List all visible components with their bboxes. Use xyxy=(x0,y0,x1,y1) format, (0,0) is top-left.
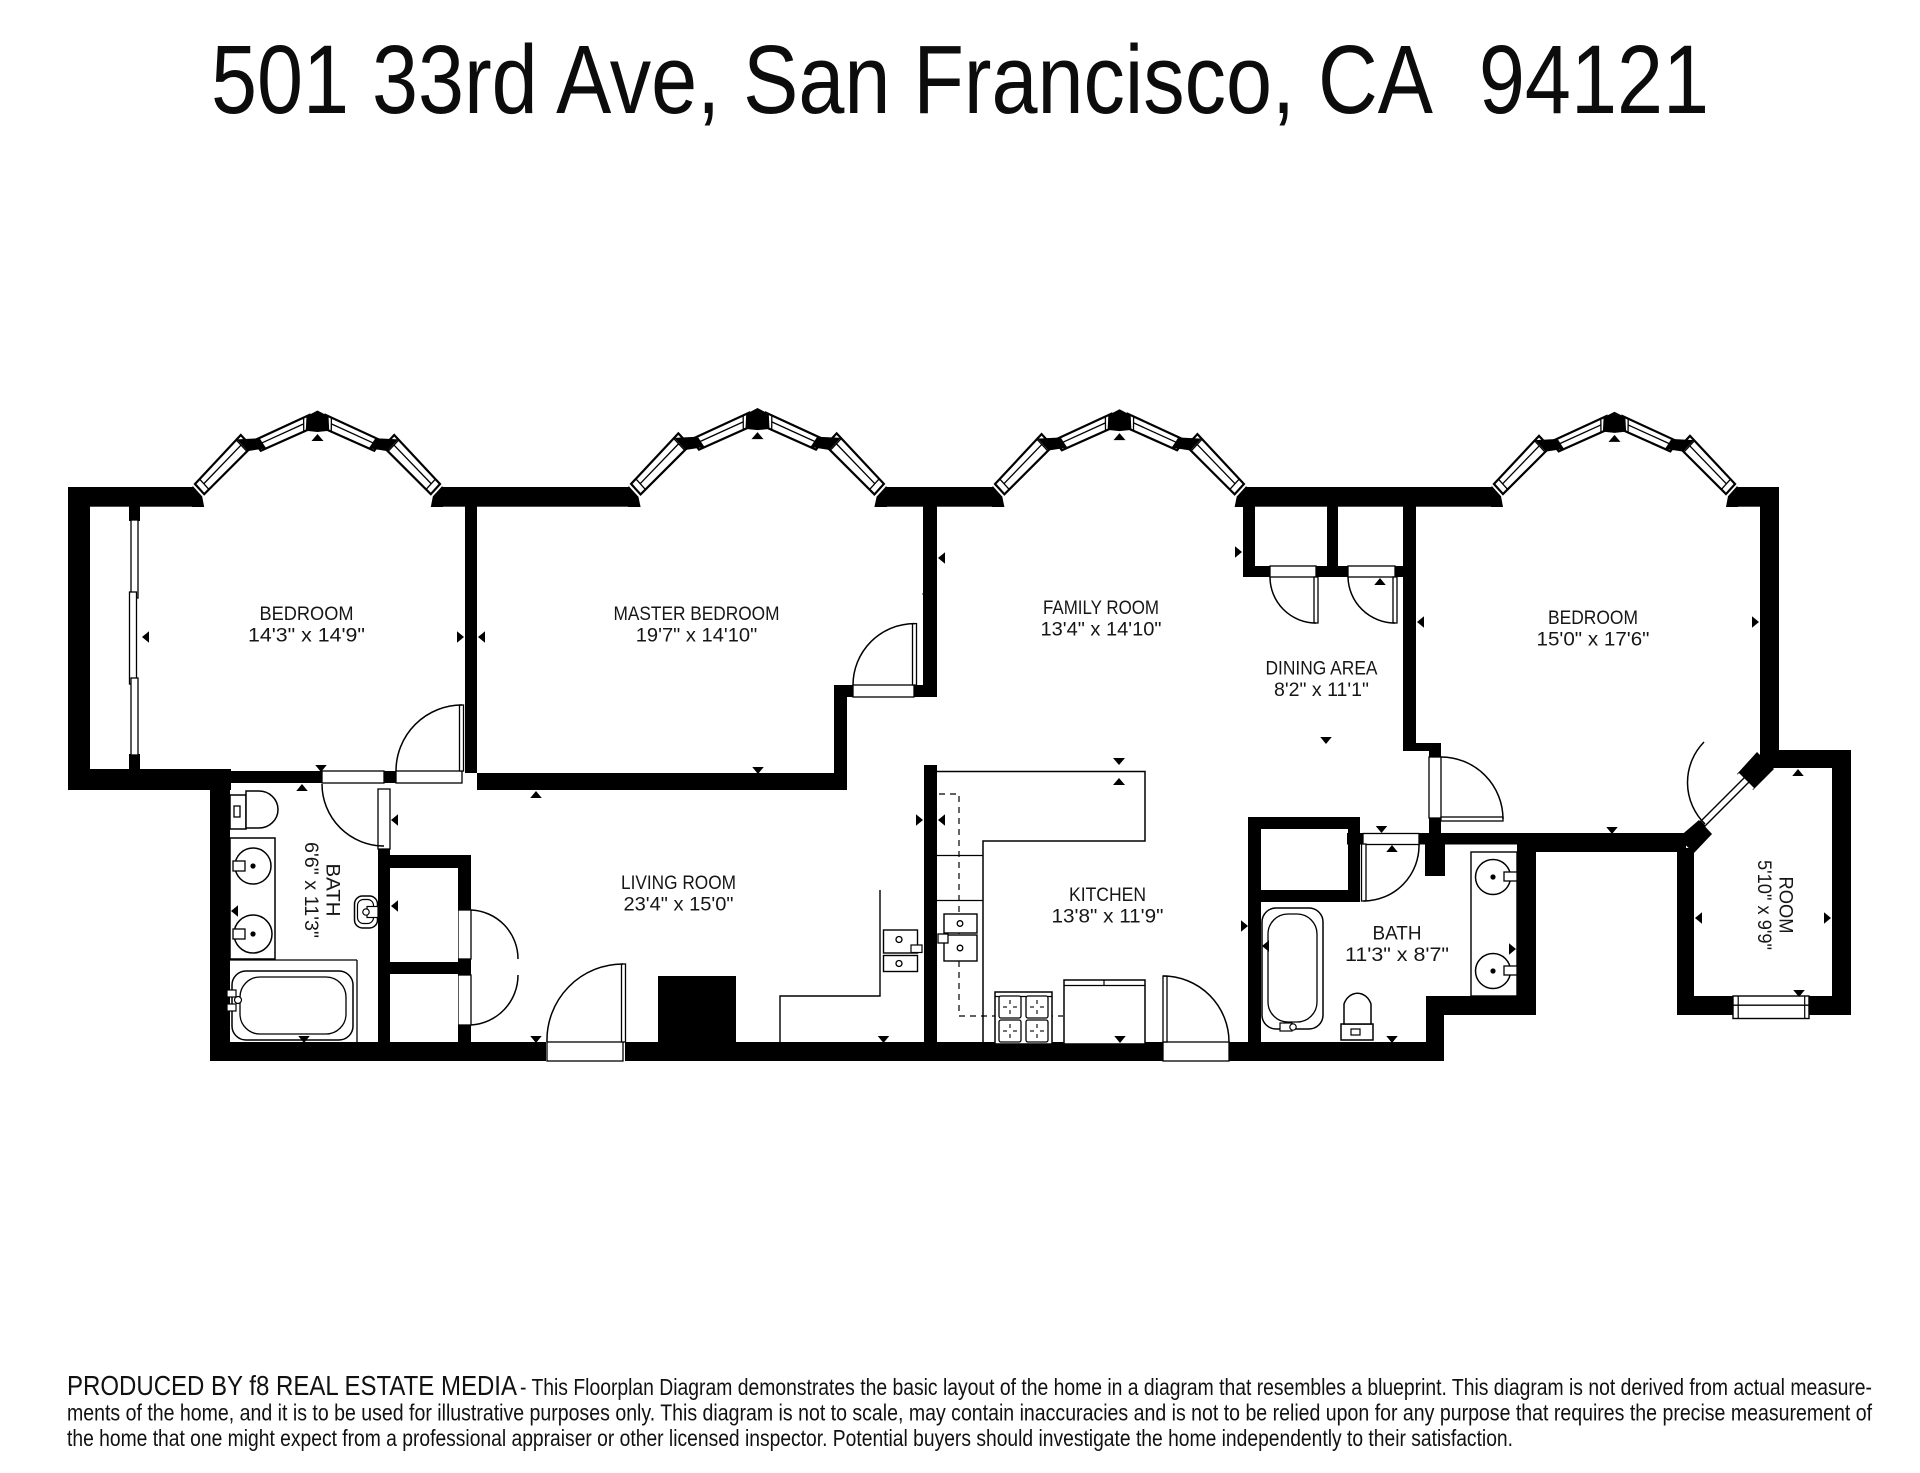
svg-text:501 33rd Ave, San Francisco, C: 501 33rd Ave, San Francisco, CA 94121 xyxy=(211,25,1709,134)
svg-text:6'6" x 11'3": 6'6" x 11'3" xyxy=(300,842,322,938)
svg-text:the home that one might expect: the home that one might expect from a pr… xyxy=(67,1425,1513,1451)
svg-text:8'2" x 11'1": 8'2" x 11'1" xyxy=(1274,679,1369,701)
svg-text:5'10" x 9'9": 5'10" x 9'9" xyxy=(1753,860,1775,950)
svg-text:13'4" x 14'10": 13'4" x 14'10" xyxy=(1041,619,1162,641)
svg-text:BATH: BATH xyxy=(322,864,344,917)
svg-text:BEDROOM: BEDROOM xyxy=(1548,607,1638,629)
svg-text:DINING AREA: DINING AREA xyxy=(1266,658,1378,680)
svg-text:11'3" x 8'7": 11'3" x 8'7" xyxy=(1345,944,1449,966)
svg-text:KITCHEN: KITCHEN xyxy=(1069,884,1146,906)
svg-text:LIVING ROOM: LIVING ROOM xyxy=(621,872,736,894)
svg-text:FAMILY ROOM: FAMILY ROOM xyxy=(1043,597,1159,619)
svg-text:BATH: BATH xyxy=(1373,922,1422,944)
svg-text:13'8" x 11'9": 13'8" x 11'9" xyxy=(1052,906,1164,928)
svg-text:PRODUCED BY f8 REAL ESTATE MED: PRODUCED BY f8 REAL ESTATE MEDIA xyxy=(67,1370,517,1401)
svg-text:15'0" x 17'6": 15'0" x 17'6" xyxy=(1537,629,1650,651)
svg-text:ROOM: ROOM xyxy=(1775,877,1797,934)
svg-text:BEDROOM: BEDROOM xyxy=(260,603,354,625)
svg-text:23'4" x 15'0": 23'4" x 15'0" xyxy=(624,894,734,916)
svg-text:- This Floorplan Diagram demon: - This Floorplan Diagram demonstrates th… xyxy=(520,1374,1872,1400)
svg-text:19'7" x 14'10": 19'7" x 14'10" xyxy=(636,624,758,646)
svg-text:14'3" x 14'9": 14'3" x 14'9" xyxy=(248,625,365,647)
svg-text:MASTER BEDROOM: MASTER BEDROOM xyxy=(614,603,780,625)
svg-text:ments of the home, and it is t: ments of the home, and it is to be used … xyxy=(67,1400,1872,1426)
